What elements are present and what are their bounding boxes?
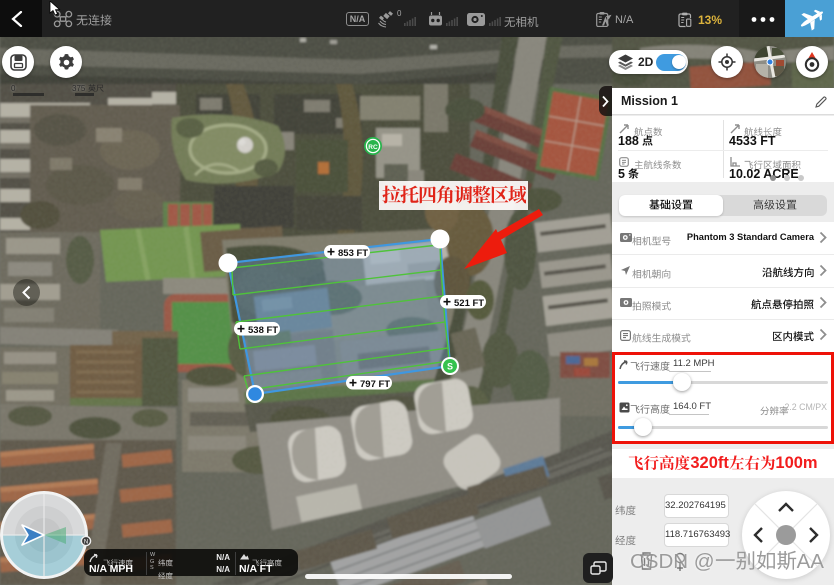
svg-text:S: S	[447, 362, 453, 372]
svg-text:RC: RC	[368, 144, 378, 151]
svg-text:521 FT: 521 FT	[454, 298, 484, 309]
svg-text:538 FT: 538 FT	[248, 325, 278, 336]
svg-text:853 FT: 853 FT	[338, 248, 368, 259]
svg-text:797 FT: 797 FT	[360, 379, 390, 390]
svg-text:N: N	[84, 540, 88, 546]
